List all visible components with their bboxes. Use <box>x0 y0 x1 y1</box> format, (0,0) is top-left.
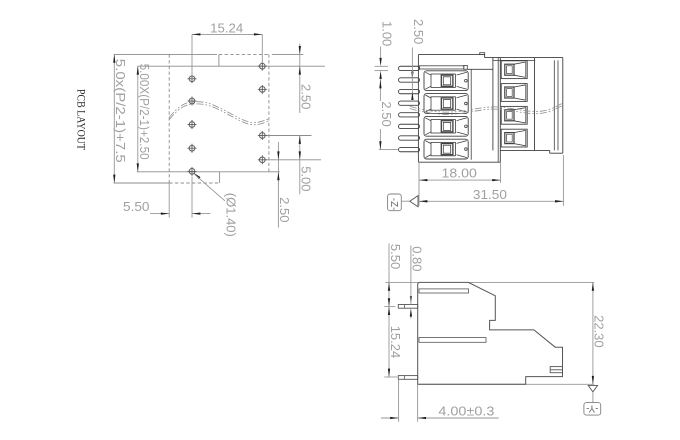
svg-text:PCB LAYOUT: PCB LAYOUT <box>75 89 89 151</box>
svg-text:5.50: 5.50 <box>123 199 150 214</box>
svg-text:5.00X(P/2-1)+2.50: 5.00X(P/2-1)+2.50 <box>137 64 152 160</box>
svg-text:5.0x(P/2-1)+7.5: 5.0x(P/2-1)+7.5 <box>113 59 128 163</box>
svg-text:5.00: 5.00 <box>299 166 314 191</box>
svg-text:22.30: 22.30 <box>592 315 607 348</box>
svg-text:2.50: 2.50 <box>379 101 394 126</box>
svg-text:2.50: 2.50 <box>411 19 426 44</box>
svg-text:(Ø1.40): (Ø1.40) <box>224 193 239 237</box>
svg-text:-Z-: -Z- <box>388 198 399 211</box>
svg-text:31.50: 31.50 <box>473 187 507 202</box>
svg-text:2.50: 2.50 <box>277 197 292 222</box>
svg-text:4.00±0.3: 4.00±0.3 <box>438 404 494 419</box>
svg-text:18.00: 18.00 <box>442 165 477 180</box>
svg-text:2.50: 2.50 <box>299 84 314 109</box>
svg-text:15.24: 15.24 <box>388 326 403 359</box>
svg-text:15.24: 15.24 <box>210 20 243 35</box>
svg-text:1.00: 1.00 <box>379 21 394 46</box>
svg-text:0.80: 0.80 <box>409 246 424 271</box>
svg-text:-Y-: -Y- <box>586 403 598 414</box>
svg-text:5.50: 5.50 <box>388 244 403 269</box>
